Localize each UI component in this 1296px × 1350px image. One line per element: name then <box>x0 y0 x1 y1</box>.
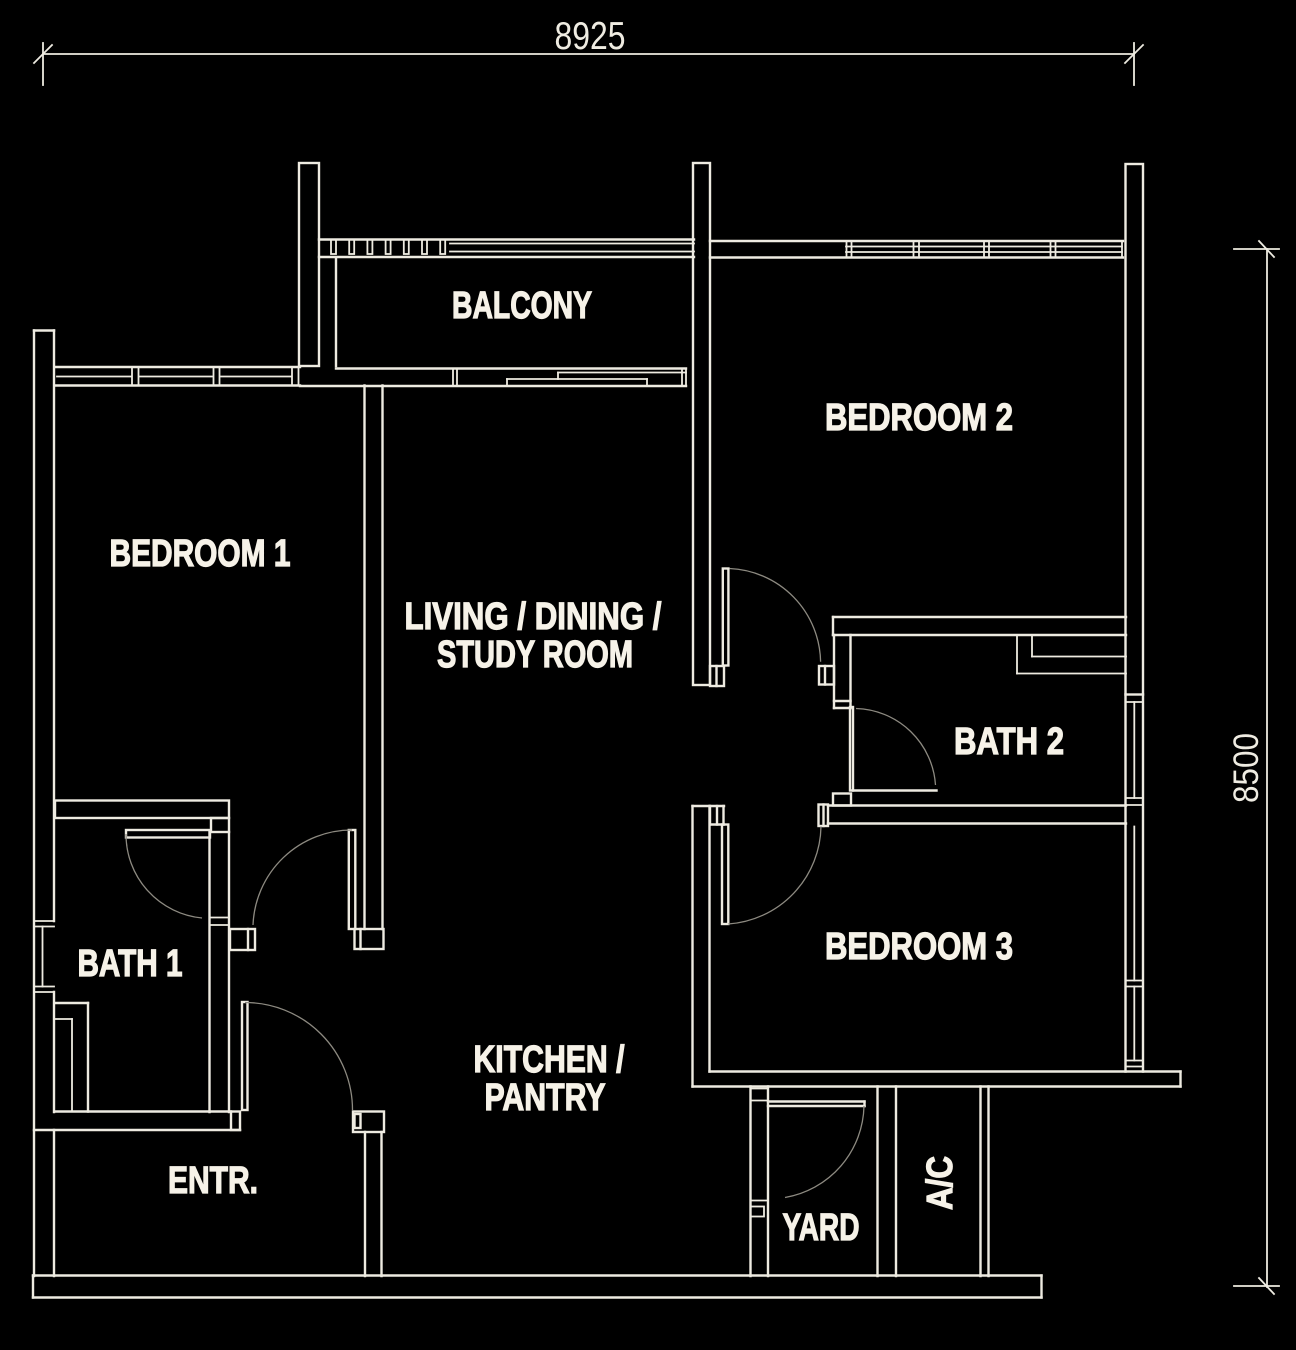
svg-text:A/C: A/C <box>919 1156 960 1210</box>
svg-text:STUDY ROOM: STUDY ROOM <box>437 634 633 676</box>
svg-text:KITCHEN /: KITCHEN / <box>474 1039 625 1081</box>
svg-text:BEDROOM 3: BEDROOM 3 <box>825 926 1013 968</box>
svg-text:BATH 1: BATH 1 <box>78 943 183 985</box>
svg-text:ENTR.: ENTR. <box>168 1160 258 1202</box>
svg-text:BEDROOM 1: BEDROOM 1 <box>110 533 291 575</box>
svg-text:8500: 8500 <box>1227 733 1266 803</box>
svg-text:YARD: YARD <box>783 1207 860 1249</box>
svg-text:LIVING / DINING /: LIVING / DINING / <box>405 596 662 638</box>
svg-text:BATH 2: BATH 2 <box>954 721 1064 763</box>
svg-text:8925: 8925 <box>555 15 626 58</box>
svg-text:BEDROOM 2: BEDROOM 2 <box>825 397 1013 439</box>
svg-text:PANTRY: PANTRY <box>485 1077 606 1119</box>
svg-text:BALCONY: BALCONY <box>452 285 592 327</box>
